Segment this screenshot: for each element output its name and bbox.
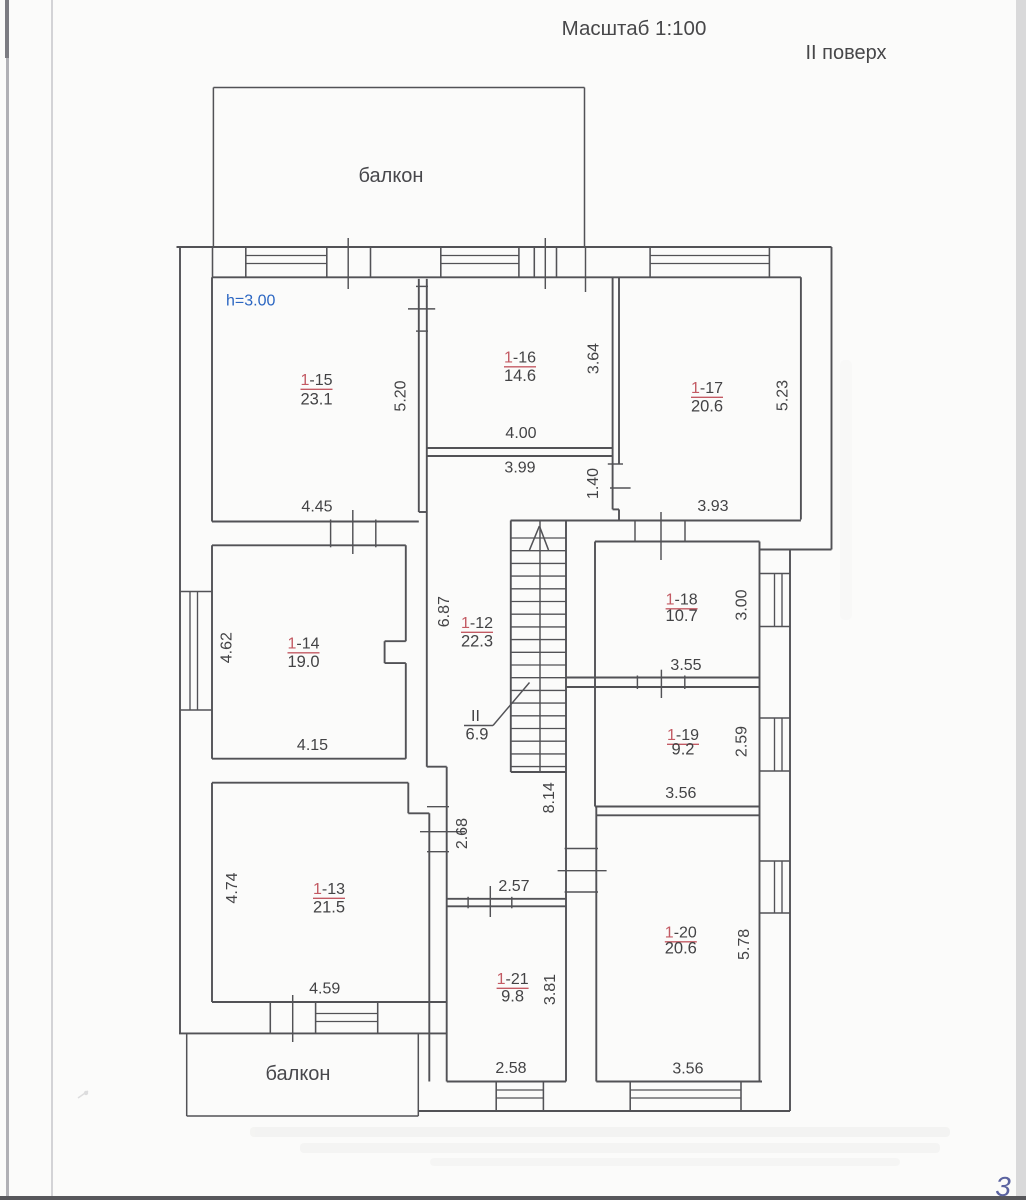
svg-text:балкон: балкон xyxy=(266,1063,331,1085)
svg-text:Масштаб 1:100: Масштаб 1:100 xyxy=(562,17,707,40)
svg-text:5.78: 5.78 xyxy=(736,929,753,960)
svg-text:14.6: 14.6 xyxy=(504,367,536,385)
svg-text:9.8: 9.8 xyxy=(501,988,524,1006)
svg-text:-16: -16 xyxy=(513,350,536,367)
svg-text:1: 1 xyxy=(504,350,513,367)
svg-text:4.00: 4.00 xyxy=(505,425,536,442)
svg-text:-21: -21 xyxy=(506,971,529,988)
svg-text:20.6: 20.6 xyxy=(691,398,723,416)
svg-text:8.14: 8.14 xyxy=(541,782,558,813)
svg-text:4.15: 4.15 xyxy=(297,737,328,754)
svg-text:-13: -13 xyxy=(322,881,345,898)
svg-text:4.74: 4.74 xyxy=(224,872,241,903)
svg-text:21.5: 21.5 xyxy=(313,899,345,917)
svg-text:-18: -18 xyxy=(675,592,698,609)
svg-text:3.56: 3.56 xyxy=(672,1060,703,1077)
svg-text:1: 1 xyxy=(691,380,700,397)
svg-text:3.99: 3.99 xyxy=(504,460,535,477)
svg-text:h=3.00: h=3.00 xyxy=(226,293,275,310)
svg-text:II поверх: II поверх xyxy=(805,42,886,64)
svg-text:1: 1 xyxy=(287,636,296,653)
svg-text:1: 1 xyxy=(497,971,506,988)
svg-text:II: II xyxy=(471,708,480,725)
svg-text:3.55: 3.55 xyxy=(670,657,701,674)
svg-text:20.6: 20.6 xyxy=(665,940,697,958)
svg-text:6.9: 6.9 xyxy=(466,726,489,744)
svg-text:9.2: 9.2 xyxy=(672,741,695,759)
svg-text:3.56: 3.56 xyxy=(665,785,696,802)
svg-text:4.62: 4.62 xyxy=(219,632,236,663)
svg-text:3: 3 xyxy=(995,1171,1011,1200)
svg-text:5.20: 5.20 xyxy=(393,380,410,411)
svg-text:2.58: 2.58 xyxy=(495,1060,526,1077)
svg-text:1: 1 xyxy=(300,372,309,389)
svg-text:-17: -17 xyxy=(700,380,723,397)
svg-text:1: 1 xyxy=(461,615,470,632)
svg-text:4.45: 4.45 xyxy=(301,499,332,516)
svg-text:10.7: 10.7 xyxy=(666,607,698,625)
svg-text:22.3: 22.3 xyxy=(461,633,493,651)
svg-text:2.59: 2.59 xyxy=(734,726,751,757)
svg-text:1: 1 xyxy=(666,592,675,609)
svg-text:3.81: 3.81 xyxy=(542,974,559,1005)
svg-text:5.23: 5.23 xyxy=(775,380,792,411)
svg-text:2.57: 2.57 xyxy=(498,878,529,895)
svg-text:6.87: 6.87 xyxy=(436,596,453,627)
svg-text:2.68: 2.68 xyxy=(454,818,471,849)
svg-text:4.59: 4.59 xyxy=(309,980,340,997)
svg-text:3.93: 3.93 xyxy=(697,498,728,515)
svg-text:-15: -15 xyxy=(309,372,332,389)
svg-text:19.0: 19.0 xyxy=(287,653,319,671)
svg-text:-14: -14 xyxy=(296,636,319,653)
svg-text:1: 1 xyxy=(313,881,322,898)
svg-text:3.00: 3.00 xyxy=(734,589,751,620)
svg-text:1.40: 1.40 xyxy=(585,468,602,499)
svg-text:-12: -12 xyxy=(470,615,493,632)
svg-text:23.1: 23.1 xyxy=(300,391,332,409)
svg-text:балкон: балкон xyxy=(359,165,424,187)
svg-text:3.64: 3.64 xyxy=(586,343,603,374)
